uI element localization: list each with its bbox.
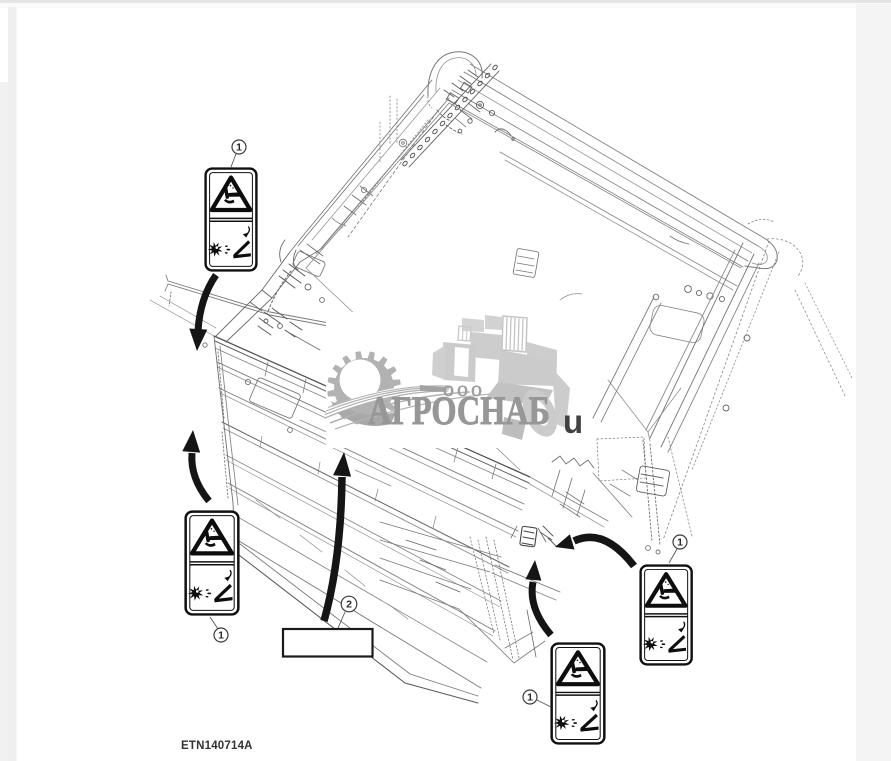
svg-text:2: 2 [346,599,352,611]
svg-text:АГРОСНАБ: АГРОСНАБ [368,388,550,433]
svg-text:1: 1 [218,630,224,642]
svg-text:ETN140714A: ETN140714A [181,740,253,752]
svg-text:1: 1 [527,692,533,704]
svg-text:u: u [563,403,583,440]
svg-text:1: 1 [677,537,683,549]
svg-text:1: 1 [236,142,242,154]
